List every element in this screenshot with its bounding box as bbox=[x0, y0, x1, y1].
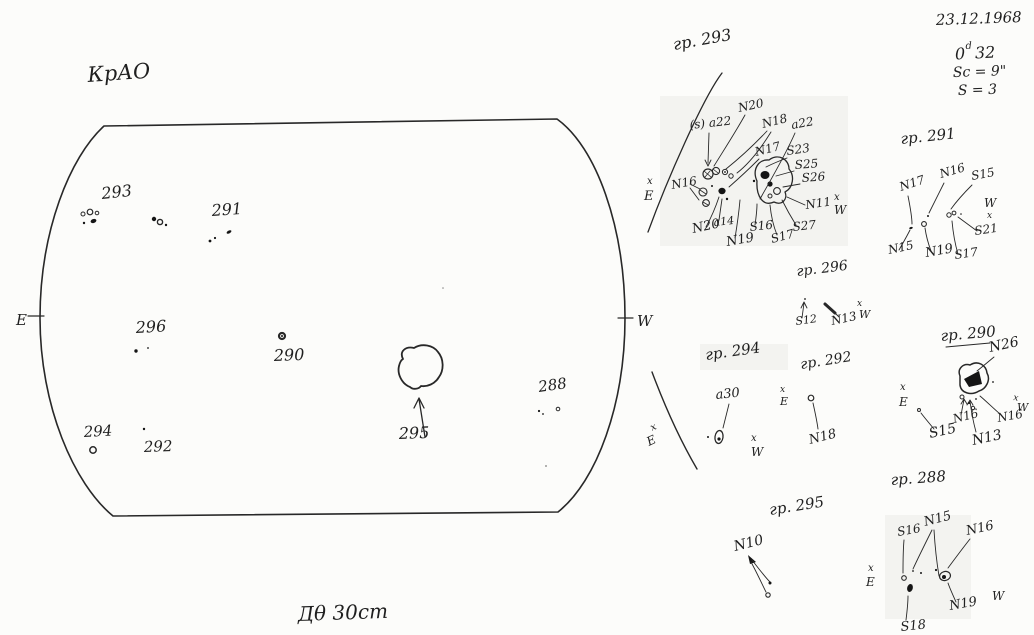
d293-axis-e: E bbox=[643, 189, 654, 204]
d294-spot bbox=[707, 430, 724, 444]
d291-label-n19: N19 bbox=[923, 241, 954, 261]
s-index-label: S = 3 bbox=[958, 82, 998, 99]
d294-limb-line bbox=[652, 372, 697, 469]
disk-west-label: W bbox=[637, 312, 654, 330]
group-291-number: 291 bbox=[210, 199, 243, 220]
d288-label-s18: S18 bbox=[900, 617, 927, 635]
d291-spots bbox=[909, 211, 962, 229]
group-290-spot bbox=[279, 333, 285, 339]
group-294-number: 294 bbox=[82, 422, 113, 442]
d296-axis-w: W bbox=[859, 308, 872, 321]
d288-axis-w: W bbox=[992, 589, 1006, 603]
detail-296: гр. 296 S12 N13 x W bbox=[795, 258, 872, 328]
d296-title: гр. 296 bbox=[796, 258, 849, 280]
d288-axis-x: x bbox=[868, 563, 874, 574]
d291-axis-w: W bbox=[984, 196, 998, 210]
group-288-number: 288 bbox=[536, 374, 568, 396]
d292-axis-x: x bbox=[780, 385, 785, 395]
disk-outline bbox=[40, 119, 625, 516]
detail-295: гр. 295 N10 bbox=[731, 493, 825, 598]
group-295-blob bbox=[399, 345, 443, 389]
d292-n18-leader bbox=[813, 403, 818, 429]
d293-label-s27: S27 bbox=[792, 218, 817, 234]
d290-label-n16-left: N16 bbox=[950, 406, 980, 426]
d293-axis-w: W bbox=[834, 203, 848, 217]
group-292-spot bbox=[143, 428, 145, 430]
solar-disk: E W 293 291 296 290 294 292 295 288 bbox=[15, 119, 654, 516]
d296-spot-s12 bbox=[804, 298, 806, 300]
observation-sheet: КрАО 23.12.1968 0 d 32 Sc = 9" S = 3 E W… bbox=[0, 0, 1034, 635]
center-speck bbox=[442, 287, 444, 289]
d291-axis-x: x bbox=[987, 211, 992, 221]
d293-title: гр. 293 bbox=[671, 25, 732, 54]
d294-a30-leader bbox=[723, 404, 729, 428]
d291-label-s21: S21 bbox=[973, 221, 998, 238]
d293-axis-x-east: x bbox=[647, 176, 653, 187]
detail-292: гр. 292 x E N18 bbox=[779, 349, 853, 448]
group-296-number: 296 bbox=[134, 316, 166, 337]
d295-spot-circle bbox=[766, 593, 770, 597]
observation-drawing: КрАО 23.12.1968 0 d 32 Sc = 9" S = 3 E W… bbox=[0, 0, 1034, 635]
d294-axis-x-east: x bbox=[649, 421, 659, 434]
aperture-caption: Дθ 30cm bbox=[296, 599, 388, 626]
time-label: 0 d 32 bbox=[954, 39, 995, 63]
date-label: 23.12.1968 bbox=[935, 8, 1022, 29]
d295-title: гр. 295 bbox=[768, 493, 825, 519]
d294-axis-e: E bbox=[643, 432, 658, 449]
group-291-spots bbox=[209, 230, 232, 243]
d292-axis-e: E bbox=[779, 395, 788, 408]
d291-label-n17: N17 bbox=[897, 172, 927, 194]
d290-axis-e: E bbox=[898, 395, 908, 409]
d294-axis-w: W bbox=[751, 445, 765, 459]
detail-290: гр. 290 N26 x E x W S15 N16 N13 N16 bbox=[898, 322, 1030, 449]
d295-label-n10: N10 bbox=[731, 532, 765, 555]
d290-label-n13: N13 bbox=[970, 427, 1004, 449]
d296-label-s12: S12 bbox=[795, 312, 818, 328]
d288-axis-e: E bbox=[865, 575, 875, 589]
group-296-spots bbox=[134, 347, 149, 353]
time-hours: 0 bbox=[954, 44, 965, 64]
group-292-number: 292 bbox=[143, 437, 173, 456]
d294-axis-x-west: x bbox=[751, 433, 757, 444]
seeing-label: Sc = 9" bbox=[953, 63, 1007, 81]
group-293-spots bbox=[81, 209, 167, 226]
group-288-spots bbox=[538, 407, 560, 467]
d290-axis-x-east: x bbox=[900, 382, 906, 393]
d291-label-s17: S17 bbox=[953, 245, 979, 262]
d291-label-s15: S15 bbox=[970, 165, 996, 183]
d291-label-n16: N16 bbox=[937, 160, 967, 181]
d295-spot-dot bbox=[769, 582, 772, 585]
d295-arrowhead bbox=[748, 555, 756, 564]
time-minutes: 32 bbox=[974, 42, 995, 62]
d292-spot bbox=[808, 395, 814, 401]
d290-label-n16-right: N16 bbox=[995, 407, 1024, 425]
d288-title: гр. 288 bbox=[890, 467, 946, 489]
header: КрАО 23.12.1968 0 d 32 Sc = 9" S = 3 bbox=[86, 8, 1022, 99]
d290-spot bbox=[918, 363, 994, 412]
time-superscript: d bbox=[965, 41, 972, 52]
d293-label-a14: a14 bbox=[713, 214, 735, 229]
group-290-number: 290 bbox=[272, 345, 304, 365]
group-293-number: 293 bbox=[99, 181, 132, 203]
d292-label-n18: N18 bbox=[806, 427, 838, 449]
d294-label-a30: a30 bbox=[715, 386, 741, 403]
disk-east-label: E bbox=[15, 311, 27, 329]
d291-label-n15: N15 bbox=[886, 238, 915, 257]
group-294-spot bbox=[90, 447, 96, 453]
d293-label-s26: S26 bbox=[801, 169, 826, 185]
detail-291: гр. 291 N17 N16 S15 W x S21 N15 N19 S17 bbox=[886, 124, 999, 262]
observatory-label: КрАО bbox=[86, 59, 151, 87]
d291-title: гр. 291 bbox=[900, 124, 957, 148]
d293-axis-x-west: x bbox=[834, 192, 840, 203]
d292-title: гр. 292 bbox=[799, 349, 853, 373]
d295-leader-lines bbox=[751, 560, 770, 592]
